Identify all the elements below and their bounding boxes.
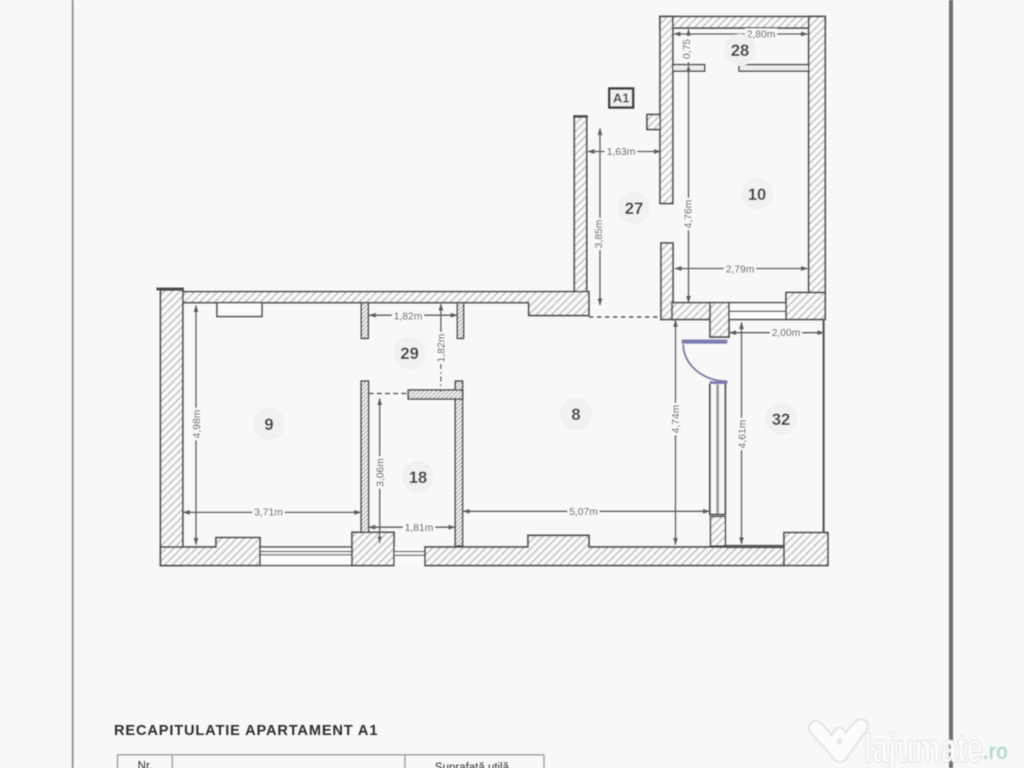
svg-text:4,98m: 4,98m [192,410,203,439]
svg-text:3,85m: 3,85m [594,220,605,249]
svg-text:18: 18 [409,469,427,487]
svg-text:4,74m: 4,74m [671,405,682,434]
svg-text:Suprafață utilă: Suprafață utilă [435,762,510,768]
svg-text:0,75: 0,75 [682,39,693,59]
svg-text:1,82m: 1,82m [437,334,448,363]
svg-text:1,81m: 1,81m [405,523,434,534]
svg-text:29: 29 [400,345,418,363]
svg-text:27: 27 [625,200,643,218]
svg-text:3,06m: 3,06m [376,458,387,487]
svg-text:28: 28 [731,42,749,60]
svg-text:10: 10 [748,186,766,204]
svg-text:3,71m: 3,71m [254,508,283,519]
svg-text:4,76m: 4,76m [684,200,695,229]
svg-text:1,82m: 1,82m [394,312,423,323]
svg-text:.ro: .ro [983,738,1008,764]
svg-text:lajumate: lajumate [864,725,983,768]
svg-text:1,63m: 1,63m [607,147,636,158]
svg-text:2,00m: 2,00m [772,328,801,339]
svg-text:4,61m: 4,61m [737,420,748,449]
svg-text:8: 8 [571,406,580,424]
svg-text:2,79m: 2,79m [726,265,755,276]
svg-text:9: 9 [264,416,273,434]
svg-text:32: 32 [772,411,790,429]
svg-text:RECAPITULATIE APARTAMENT A1: RECAPITULATIE APARTAMENT A1 [114,723,378,739]
svg-text:Nr.: Nr. [138,761,153,768]
svg-text:5,07m: 5,07m [569,507,598,518]
svg-text:A1: A1 [613,91,630,106]
